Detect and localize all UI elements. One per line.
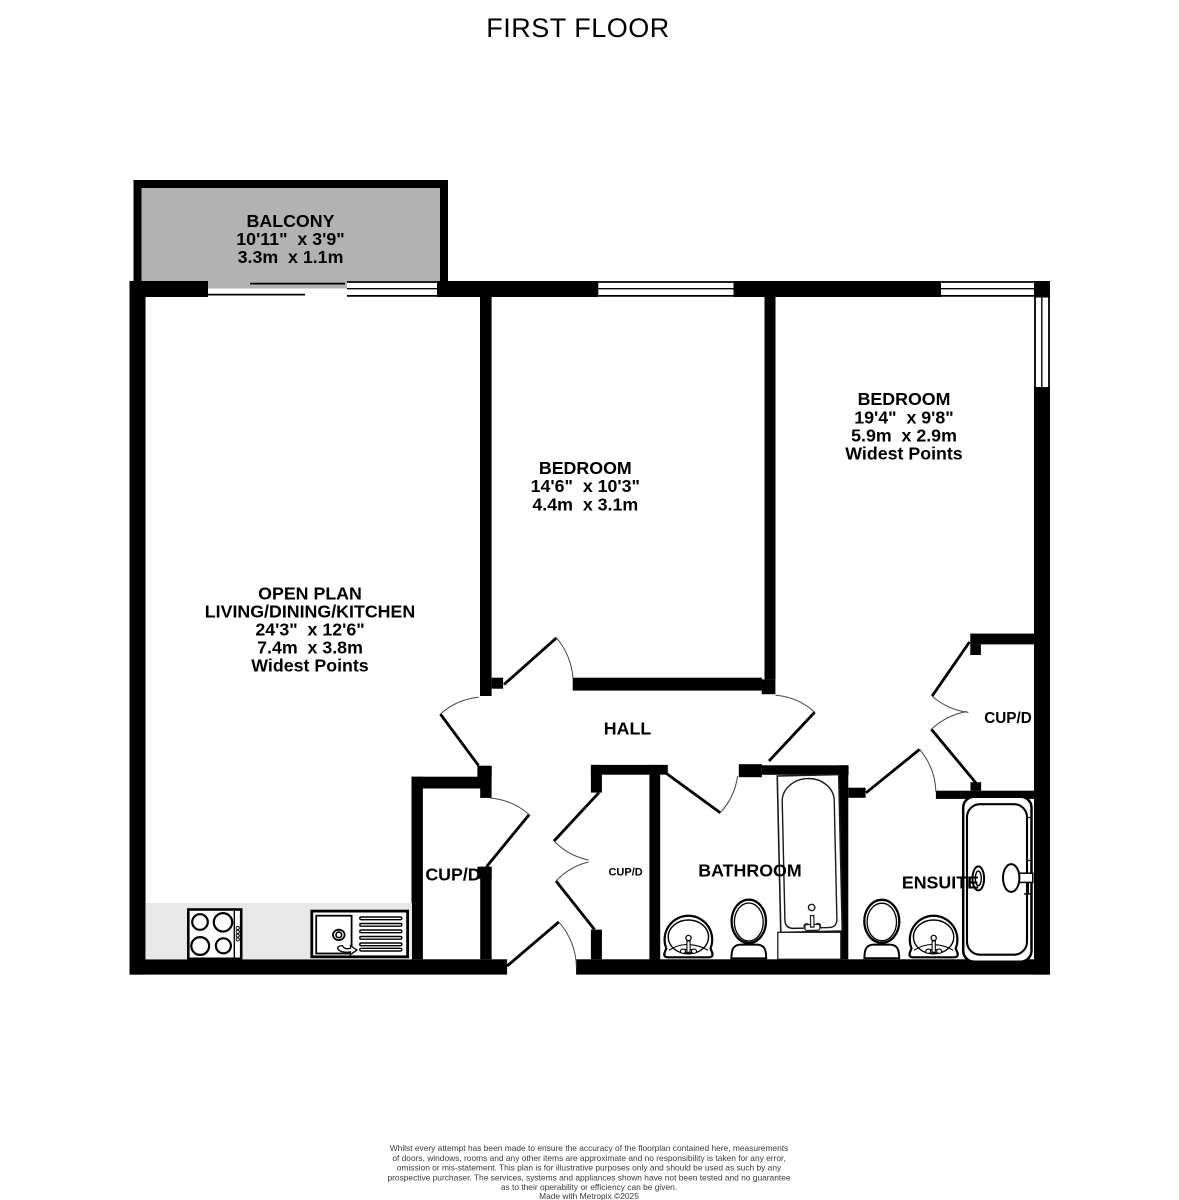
svg-text:10'11" x 3'9": 10'11" x 3'9"	[236, 229, 344, 249]
svg-text:BEDROOM: BEDROOM	[858, 389, 951, 409]
svg-text:Widest Points: Widest Points	[251, 656, 369, 676]
svg-text:of doors, windows, rooms and a: of doors, windows, rooms and any other i…	[392, 1153, 785, 1163]
svg-text:5.9m x 2.9m: 5.9m x 2.9m	[851, 426, 957, 446]
svg-text:Whilst every attempt has been: Whilst every attempt has been made to en…	[390, 1143, 789, 1153]
svg-text:CUP/D: CUP/D	[984, 710, 1032, 727]
svg-text:LIVING/DINING/KITCHEN: LIVING/DINING/KITCHEN	[205, 602, 415, 622]
svg-text:prospective purchaser. The ser: prospective purchaser. The services, sys…	[387, 1172, 790, 1182]
svg-text:BEDROOM: BEDROOM	[539, 458, 632, 478]
svg-text:FIRST FLOOR: FIRST FLOOR	[486, 13, 670, 43]
svg-text:OPEN PLAN: OPEN PLAN	[258, 584, 362, 604]
svg-text:7.4m x 3.8m: 7.4m x 3.8m	[257, 638, 363, 658]
svg-text:omission or mis-statement. Thi: omission or mis-statement. This plan is …	[397, 1163, 782, 1173]
svg-text:24'3" x 12'6": 24'3" x 12'6"	[255, 620, 364, 640]
svg-text:BATHROOM: BATHROOM	[698, 861, 801, 881]
svg-text:BALCONY: BALCONY	[247, 211, 335, 231]
svg-text:Widest Points: Widest Points	[845, 444, 963, 464]
svg-text:Made with Metropix ©2025: Made with Metropix ©2025	[539, 1191, 639, 1200]
svg-text:HALL: HALL	[604, 719, 652, 739]
svg-text:CUP/D: CUP/D	[425, 865, 480, 885]
svg-text:3.3m x 1.1m: 3.3m x 1.1m	[238, 247, 344, 267]
svg-text:ENSUITE: ENSUITE	[902, 872, 979, 892]
svg-text:14'6" x 10'3": 14'6" x 10'3"	[531, 476, 640, 496]
svg-text:19'4" x 9'8": 19'4" x 9'8"	[854, 407, 953, 427]
svg-text:4.4m x 3.1m: 4.4m x 3.1m	[532, 495, 638, 515]
svg-text:CUP/D: CUP/D	[608, 866, 642, 878]
